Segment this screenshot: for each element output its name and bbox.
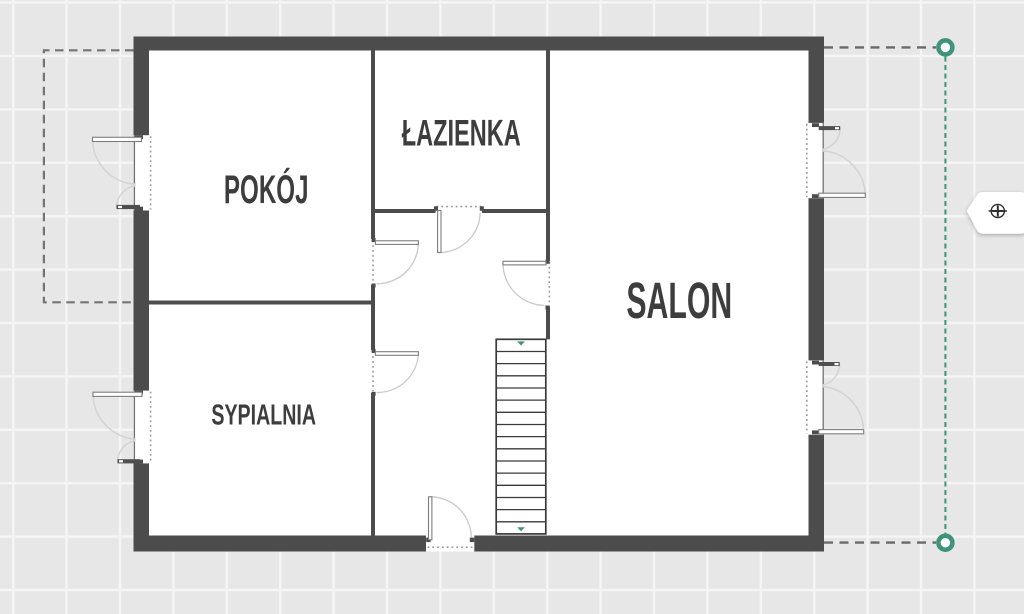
svg-text:SYPIALNIA: SYPIALNIA — [211, 400, 316, 432]
svg-text:POKÓJ: POKÓJ — [224, 167, 309, 212]
svg-text:SALON: SALON — [626, 272, 732, 329]
svg-text:ŁAZIENKA: ŁAZIENKA — [402, 112, 521, 154]
